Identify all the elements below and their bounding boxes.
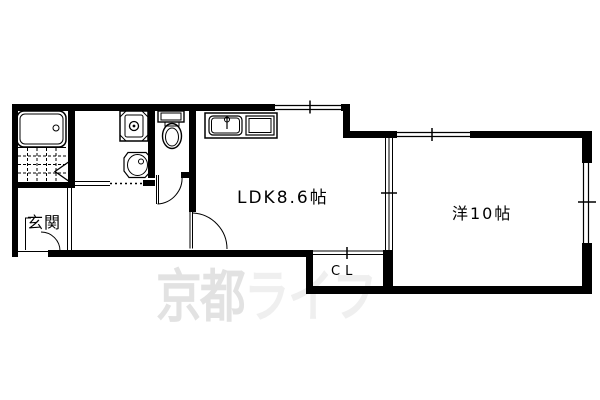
genkan-room-label: 玄関 [27, 209, 61, 233]
toilet-area [157, 111, 185, 204]
wall-closet-right [383, 250, 393, 294]
bathtub-icon [17, 111, 66, 147]
window-west-room-top-icon [397, 128, 470, 141]
bathroom-area [16, 111, 70, 182]
wall-bathroom-right [68, 104, 75, 188]
tile-floor-icon [16, 148, 66, 183]
western-room-label: 洋10帖 [452, 200, 512, 224]
washroom-opening [75, 182, 148, 186]
wall-top-west-room-left [343, 131, 397, 138]
wash-basin-icon [124, 153, 151, 178]
wall-right-upper [582, 131, 592, 163]
washing-machine-pan-icon [120, 111, 148, 141]
wall-top-left [12, 104, 275, 111]
ldk-room-label: LDK8.6帖 [237, 183, 329, 208]
genkan-partition-lines [68, 188, 72, 250]
entrance-door-swing-icon [18, 232, 60, 252]
closet-label: CL [331, 264, 357, 279]
toilet-door-swing-icon [157, 175, 183, 204]
windows [275, 101, 596, 260]
kitchen-area [190, 113, 277, 249]
folding-door-icon [55, 161, 70, 182]
washroom-area [75, 111, 151, 186]
window-west-room-right-icon [578, 163, 596, 243]
wall-bottom-right [306, 286, 592, 294]
sliding-door-closet-icon [313, 247, 383, 259]
wall-bottom-left [48, 250, 313, 257]
toilet-icon [158, 111, 184, 149]
wall-top-west-room-right [470, 131, 592, 138]
stove-icon [246, 116, 274, 135]
wall-washroom-bottom-stub [143, 180, 155, 186]
window-ldk-top-icon [275, 101, 341, 114]
sliding-door-ldk-west-partition-icon [381, 138, 397, 250]
wall-bathroom-bottom [12, 182, 75, 188]
kitchen-sink-icon [209, 116, 242, 135]
wall-ldk-left [189, 104, 196, 212]
ldk-door-swing-icon [190, 212, 227, 249]
floor-plan-page: 京都ライフ [0, 0, 600, 400]
